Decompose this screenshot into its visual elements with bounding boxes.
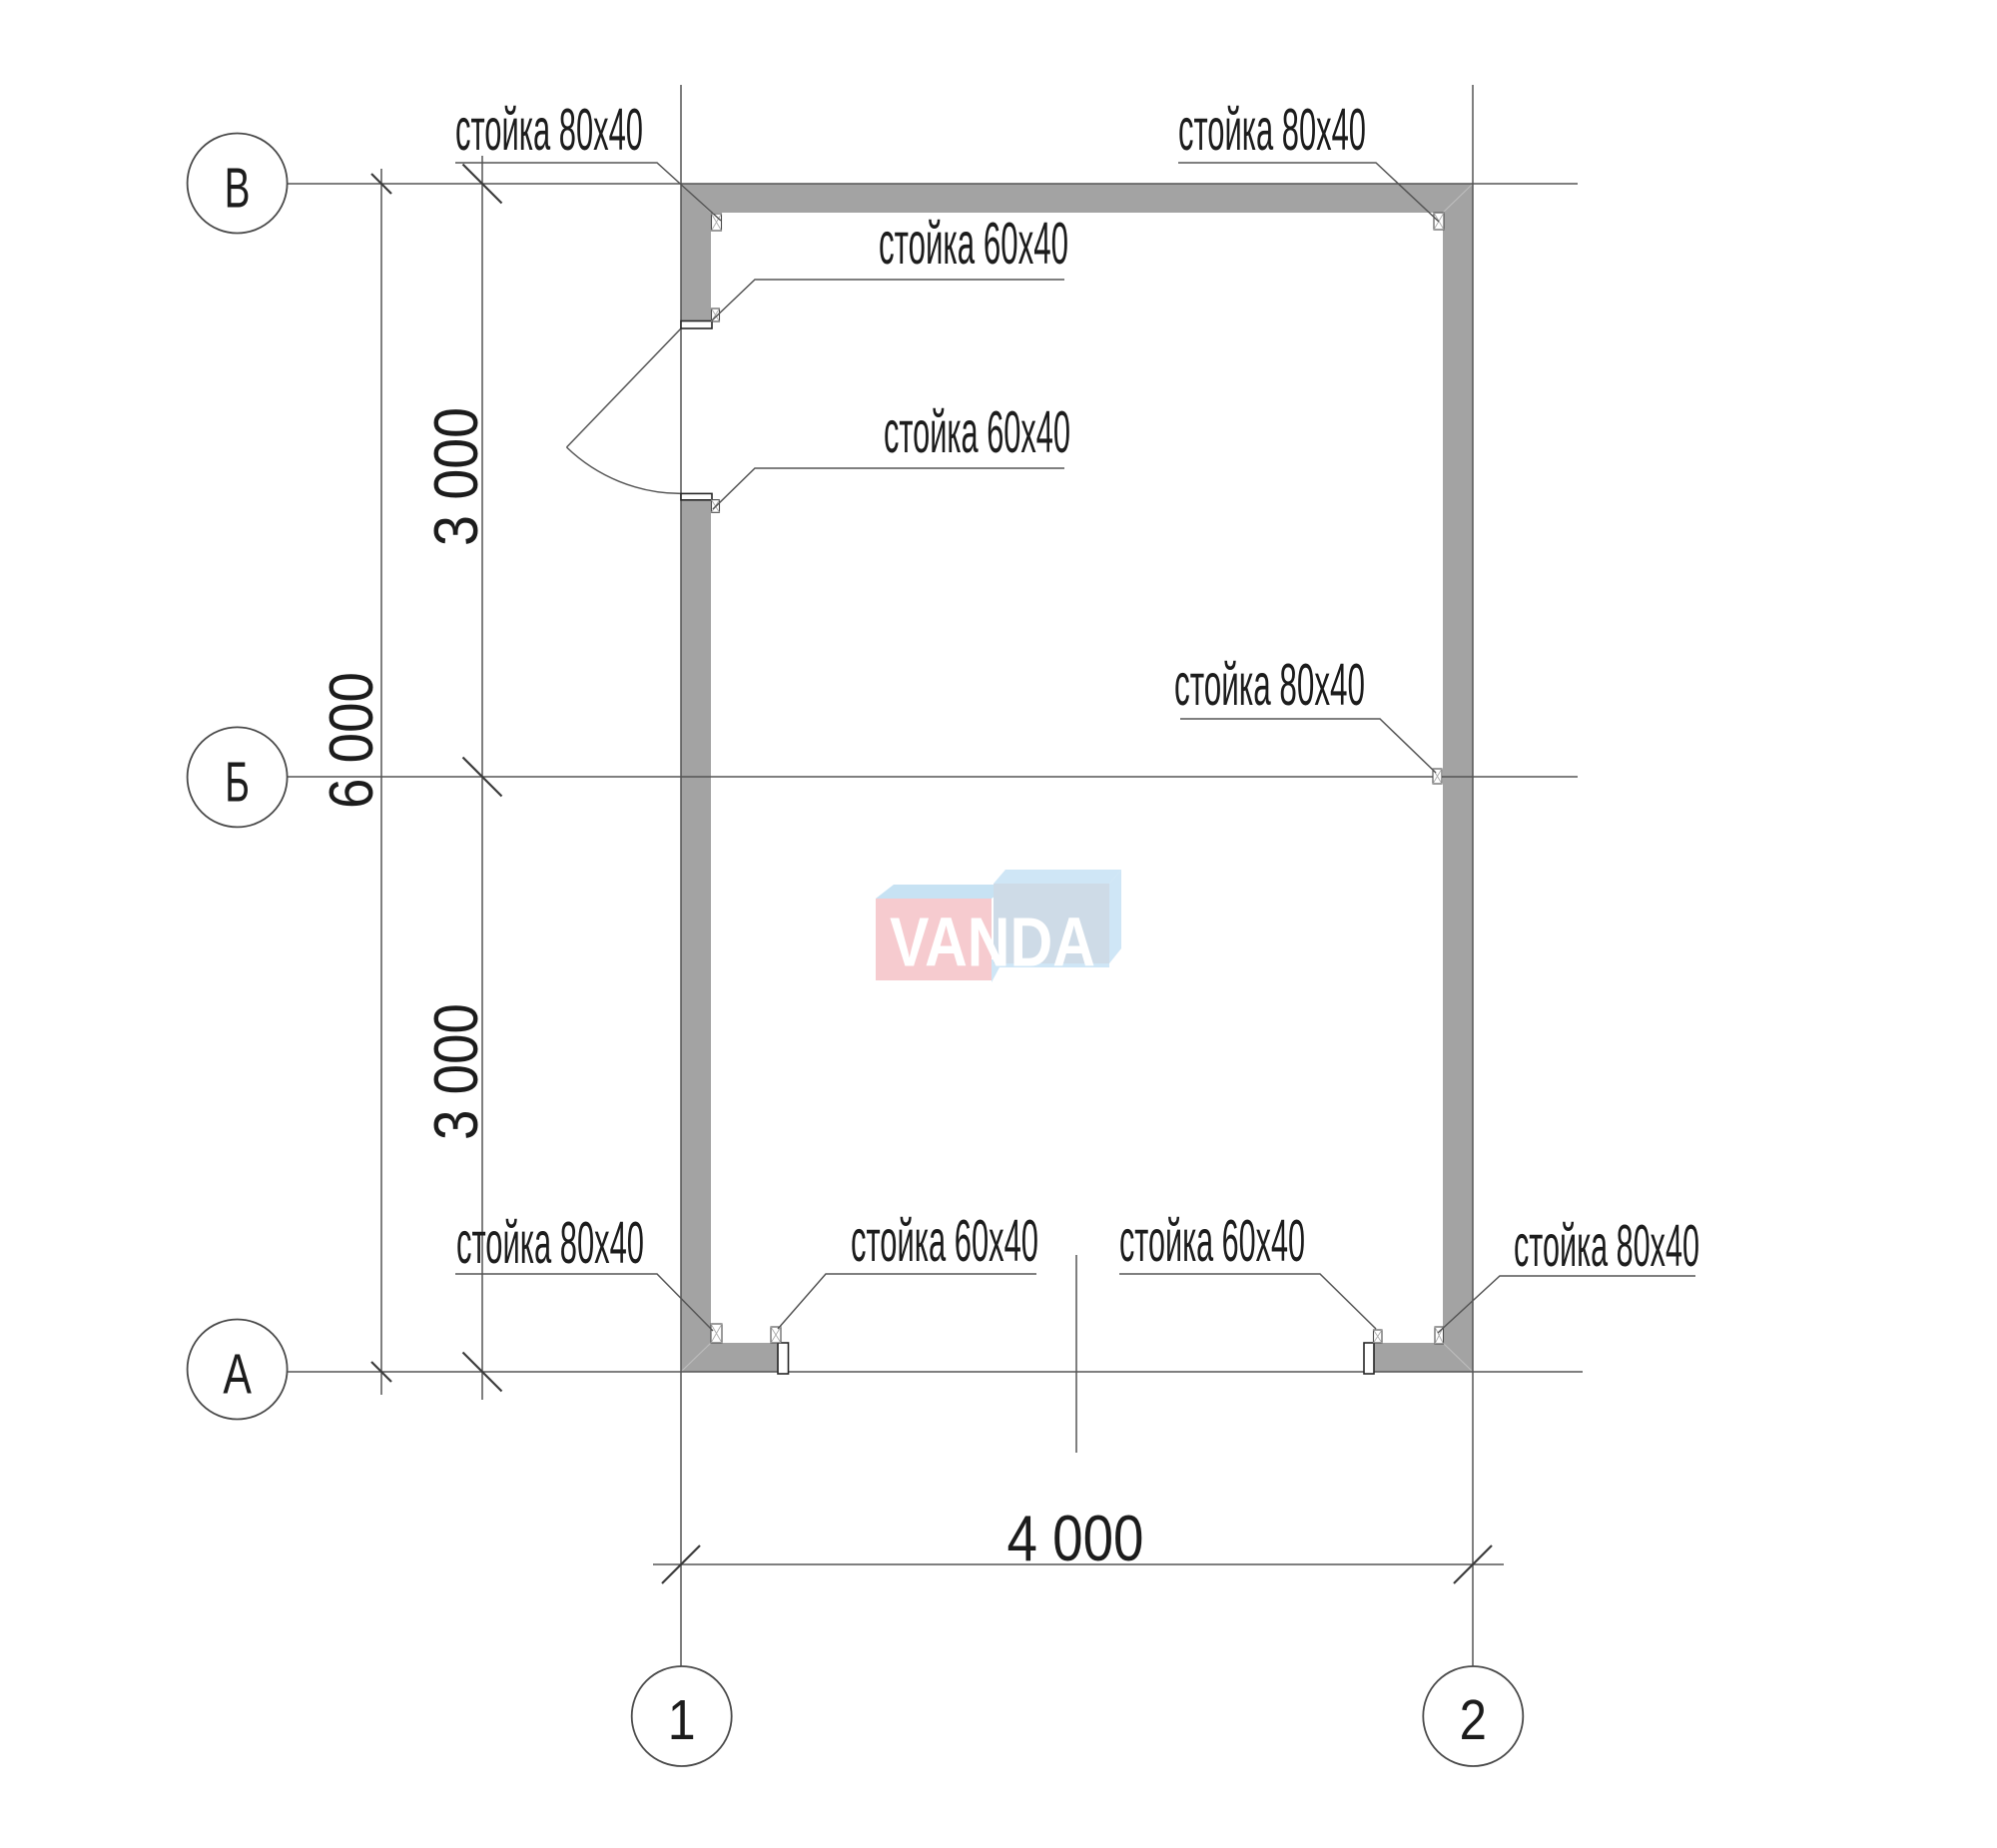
svg-text:стойка 80х40: стойка 80х40 <box>455 97 643 163</box>
svg-text:3 000: 3 000 <box>422 1003 491 1140</box>
svg-text:2: 2 <box>1460 1689 1487 1752</box>
svg-text:4 000: 4 000 <box>1007 1502 1144 1574</box>
svg-text:стойка 80х40: стойка 80х40 <box>1514 1213 1699 1279</box>
svg-text:стойка 80х40: стойка 80х40 <box>1174 652 1365 718</box>
svg-text:3 000: 3 000 <box>422 407 491 546</box>
svg-text:В: В <box>225 157 251 220</box>
svg-text:стойка 60х40: стойка 60х40 <box>884 399 1070 465</box>
svg-text:стойка 60х40: стойка 60х40 <box>879 211 1068 277</box>
svg-text:VANDA: VANDA <box>890 904 1095 981</box>
svg-text:стойка 60х40: стойка 60х40 <box>851 1208 1038 1274</box>
svg-text:стойка 60х40: стойка 60х40 <box>1119 1208 1305 1274</box>
svg-text:Б: Б <box>225 751 250 815</box>
svg-text:стойка 80х40: стойка 80х40 <box>1178 97 1366 163</box>
svg-text:6 000: 6 000 <box>318 672 386 809</box>
svg-text:А: А <box>223 1341 252 1405</box>
svg-text:1: 1 <box>668 1688 696 1752</box>
svg-text:стойка 80х40: стойка 80х40 <box>456 1210 644 1276</box>
